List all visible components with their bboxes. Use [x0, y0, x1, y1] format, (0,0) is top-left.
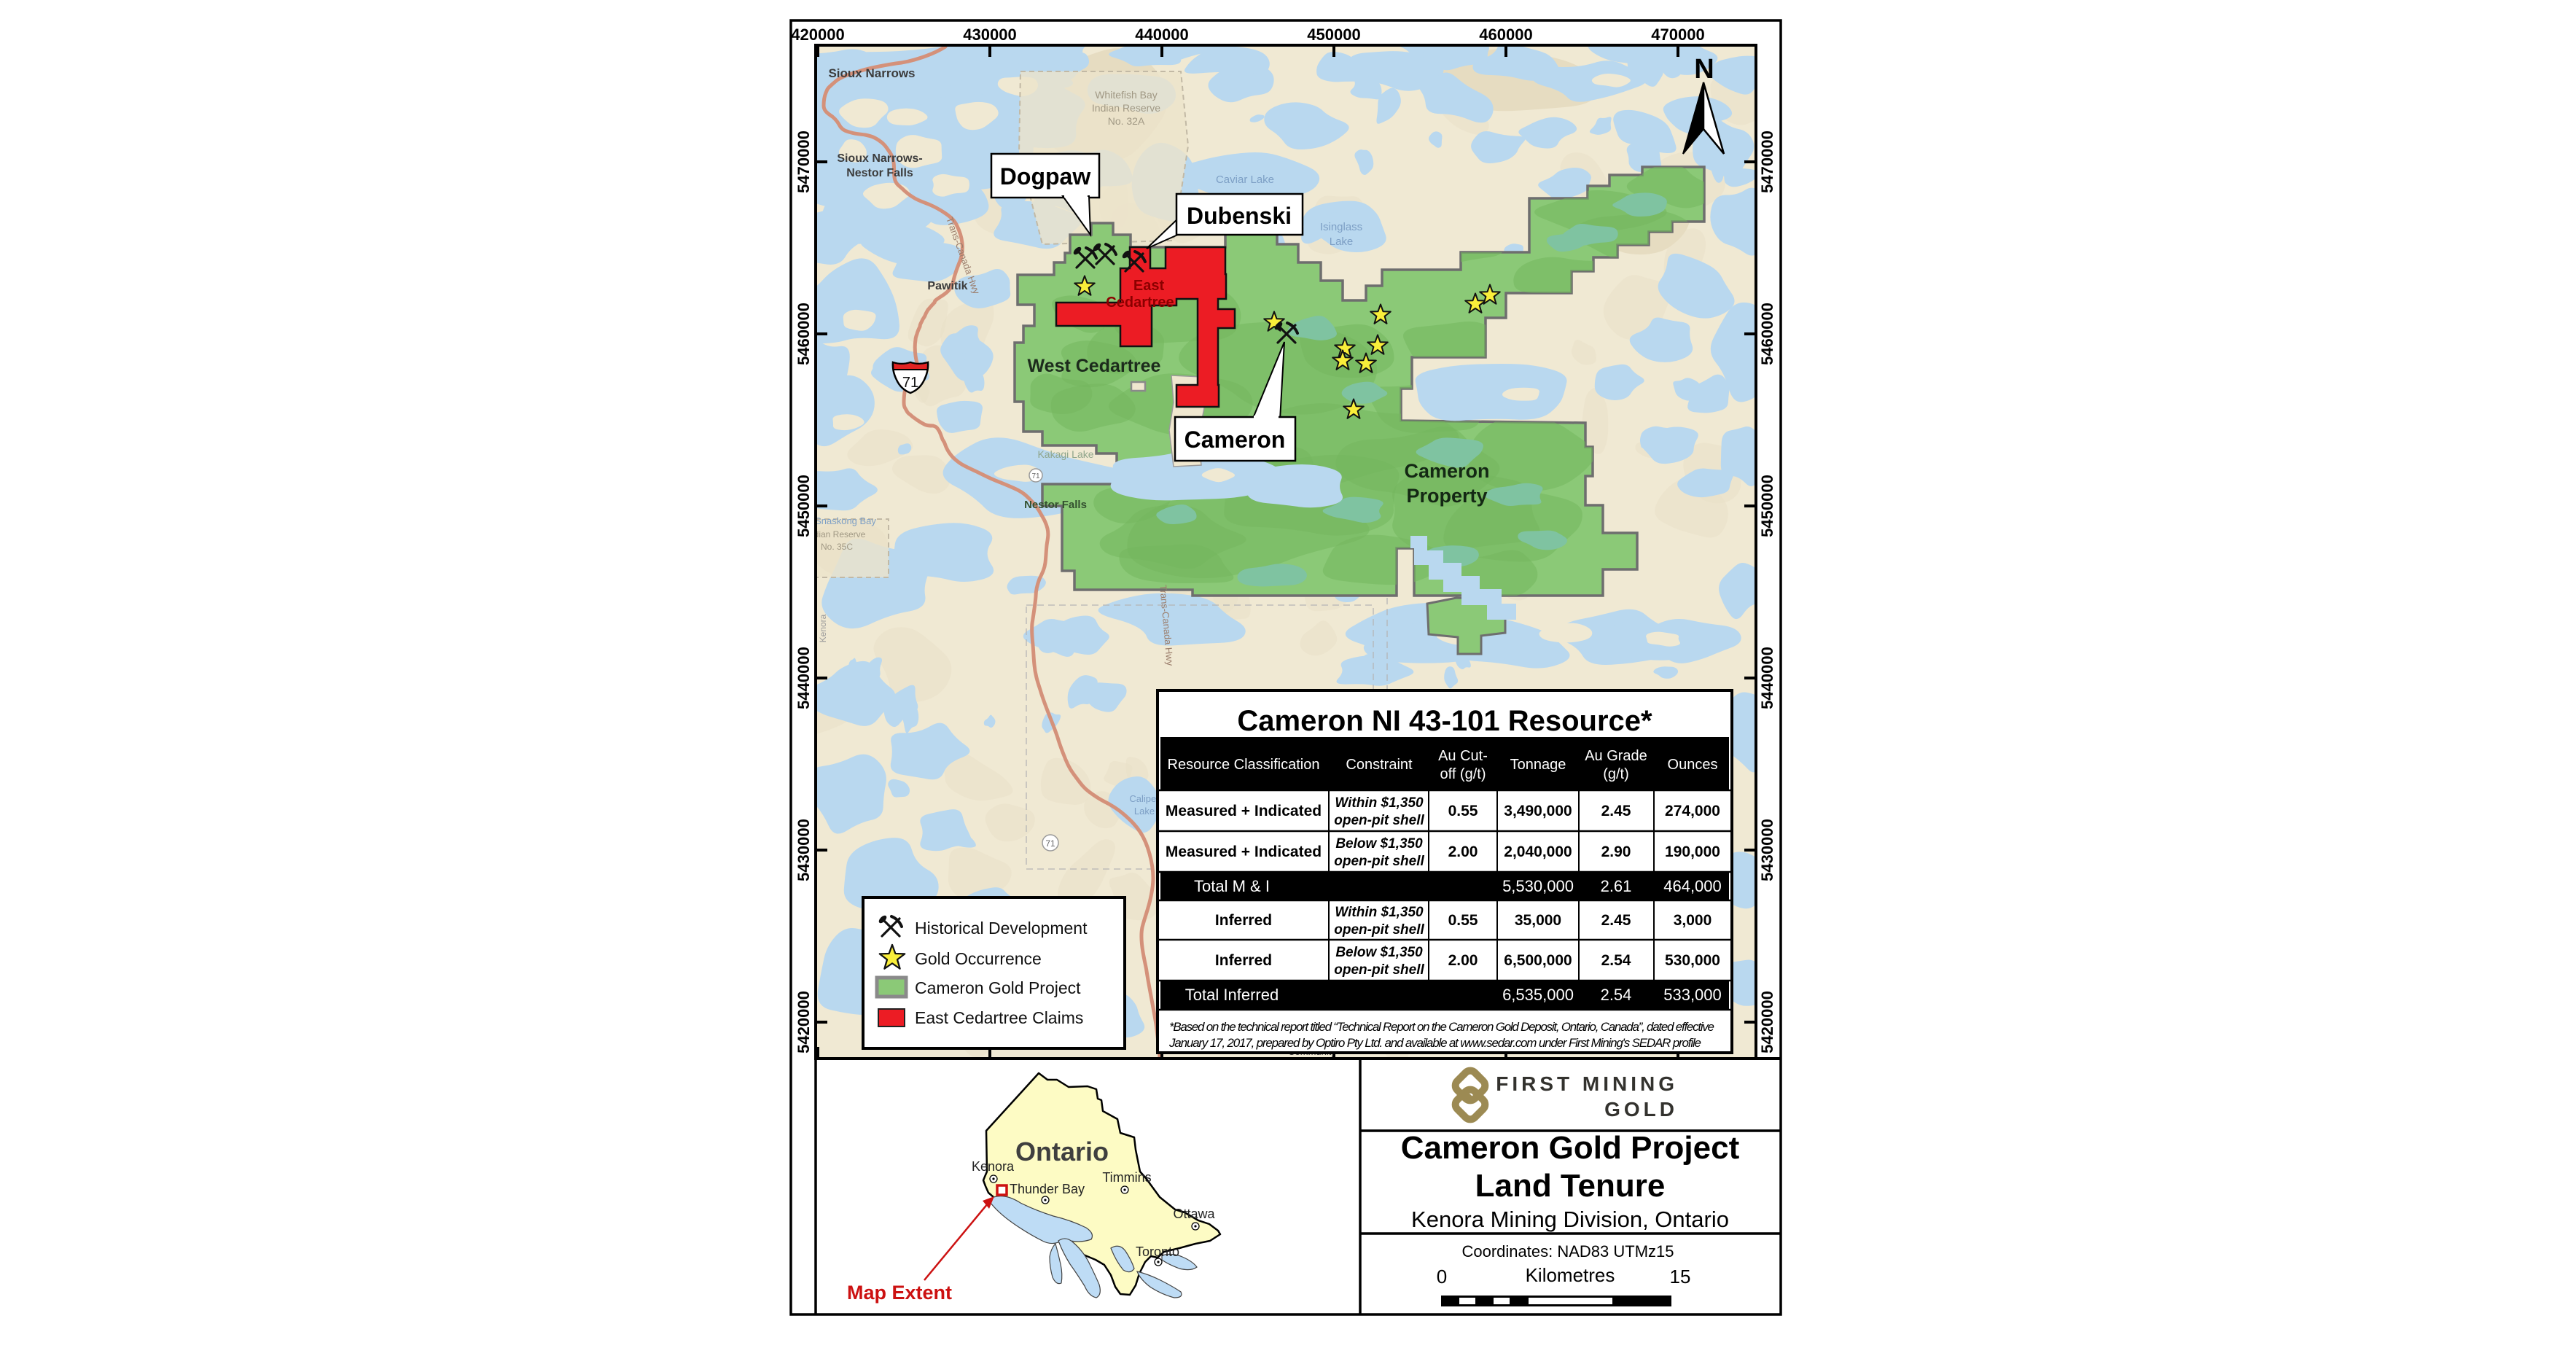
svg-text:3,000: 3,000 [1674, 912, 1712, 929]
svg-text:Inferred: Inferred [1215, 912, 1272, 929]
svg-text:Cedartree: Cedartree [1106, 295, 1174, 311]
svg-text:450000: 450000 [1307, 26, 1360, 44]
svg-text:5460000: 5460000 [795, 303, 813, 365]
svg-text:0: 0 [1437, 1266, 1447, 1287]
svg-text:Cameron Gold Project: Cameron Gold Project [1401, 1130, 1740, 1166]
svg-text:71: 71 [902, 375, 918, 391]
svg-text:Below $1,350: Below $1,350 [1335, 945, 1423, 960]
svg-text:No. 35C: No. 35C [821, 542, 853, 552]
svg-text:Cameron: Cameron [1184, 426, 1286, 453]
svg-text:71: 71 [1045, 838, 1055, 849]
svg-text:5450000: 5450000 [795, 475, 813, 537]
svg-text:2.61: 2.61 [1601, 877, 1632, 895]
svg-text:35,000: 35,000 [1515, 912, 1561, 929]
svg-text:Ounces: Ounces [1668, 757, 1718, 773]
svg-text:2.54: 2.54 [1601, 986, 1632, 1004]
svg-text:Kilometres: Kilometres [1526, 1264, 1615, 1286]
svg-text:Isinglass: Isinglass [1320, 221, 1362, 233]
svg-text:January 17, 2017, prepared by: January 17, 2017, prepared by Optiro Pty… [1168, 1036, 1701, 1050]
svg-text:Sioux Narrows: Sioux Narrows [828, 66, 915, 80]
svg-text:5420000: 5420000 [1758, 991, 1776, 1053]
svg-text:5470000: 5470000 [1758, 130, 1776, 193]
svg-text:5440000: 5440000 [1758, 647, 1776, 709]
svg-text:5,530,000: 5,530,000 [1502, 877, 1574, 895]
svg-text:open-pit shell: open-pit shell [1334, 962, 1424, 978]
svg-text:(g/t): (g/t) [1603, 766, 1629, 782]
svg-text:off (g/t): off (g/t) [1440, 766, 1486, 782]
svg-text:Indian Reserve: Indian Reserve [1092, 102, 1160, 114]
svg-text:dian Reserve: dian Reserve [814, 529, 866, 539]
svg-text:open-pit shell: open-pit shell [1334, 813, 1424, 828]
svg-text:Lake: Lake [1134, 806, 1155, 817]
svg-text:460000: 460000 [1479, 26, 1532, 44]
svg-text:open-pit shell: open-pit shell [1334, 922, 1424, 938]
svg-text:Pawitik: Pawitik [927, 280, 967, 292]
svg-text:Below $1,350: Below $1,350 [1335, 836, 1423, 852]
svg-text:0.55: 0.55 [1448, 803, 1478, 819]
svg-text:No. 32A: No. 32A [1108, 115, 1145, 127]
svg-text:274,000: 274,000 [1665, 803, 1720, 819]
svg-text:Historical Development: Historical Development [915, 919, 1088, 938]
svg-text:5430000: 5430000 [1758, 819, 1776, 881]
svg-text:Within $1,350: Within $1,350 [1335, 795, 1424, 811]
svg-text:Cameron: Cameron [1404, 460, 1489, 482]
svg-text:2.45: 2.45 [1601, 803, 1631, 819]
svg-text:5430000: 5430000 [795, 819, 813, 881]
svg-text:Caliper: Caliper [1129, 793, 1160, 804]
svg-text:Thunder Bay: Thunder Bay [1010, 1182, 1085, 1196]
svg-text:N: N [1694, 54, 1714, 85]
svg-text:Sioux Narrows-: Sioux Narrows- [837, 152, 922, 165]
svg-text:2.00: 2.00 [1448, 952, 1478, 969]
svg-text:Total M & I: Total M & I [1194, 877, 1270, 895]
svg-text:6,535,000: 6,535,000 [1502, 986, 1574, 1004]
svg-text:2.45: 2.45 [1601, 912, 1631, 929]
svg-text:533,000: 533,000 [1663, 986, 1722, 1004]
svg-text:Resource Classification: Resource Classification [1168, 757, 1320, 773]
svg-text:Dogpaw: Dogpaw [1000, 163, 1091, 190]
svg-text:3,490,000: 3,490,000 [1504, 803, 1572, 819]
svg-text:6,500,000: 6,500,000 [1504, 952, 1572, 969]
svg-text:Caviar Lake: Caviar Lake [1216, 174, 1274, 186]
svg-text:West Cedartree: West Cedartree [1028, 356, 1161, 376]
svg-text:440000: 440000 [1135, 26, 1188, 44]
svg-text:464,000: 464,000 [1663, 877, 1722, 895]
svg-text:Toronto: Toronto [1136, 1244, 1179, 1259]
svg-text:470000: 470000 [1651, 26, 1704, 44]
svg-text:GOLD: GOLD [1604, 1098, 1678, 1121]
svg-text:Measured + Indicated: Measured + Indicated [1166, 844, 1322, 860]
svg-text:5470000: 5470000 [795, 130, 813, 193]
svg-text:5420000: 5420000 [795, 991, 813, 1053]
svg-text:5440000: 5440000 [795, 647, 813, 709]
svg-text:Kenora Mining Division, Ontari: Kenora Mining Division, Ontario [1411, 1207, 1729, 1232]
svg-text:190,000: 190,000 [1665, 844, 1720, 860]
svg-text:430000: 430000 [963, 26, 1016, 44]
svg-text:Coordinates: NAD83 UTMz15: Coordinates: NAD83 UTMz15 [1461, 1242, 1674, 1261]
svg-text:Ottawa: Ottawa [1173, 1207, 1215, 1221]
svg-text:East Cedartree Claims: East Cedartree Claims [915, 1008, 1083, 1027]
svg-text:Total Inferred: Total Inferred [1185, 986, 1279, 1004]
svg-text:Nestor Falls: Nestor Falls [846, 167, 913, 179]
svg-text:Kakagi Lake: Kakagi Lake [1037, 448, 1093, 460]
svg-text:Kenora: Kenora [818, 614, 828, 642]
svg-text:Nestor Falls: Nestor Falls [1024, 499, 1087, 511]
svg-text:Au Grade: Au Grade [1585, 748, 1647, 764]
svg-text:Ontario: Ontario [1015, 1137, 1109, 1166]
svg-text:Property: Property [1406, 485, 1487, 507]
svg-text:2.90: 2.90 [1601, 844, 1631, 860]
svg-text:Inferred: Inferred [1215, 952, 1272, 969]
svg-text:Whitefish Bay: Whitefish Bay [1095, 89, 1158, 101]
svg-text:Map Extent: Map Extent [847, 1282, 952, 1304]
svg-text:Measured + Indicated: Measured + Indicated [1166, 803, 1322, 819]
svg-text:Land Tenure: Land Tenure [1475, 1168, 1666, 1204]
svg-text:530,000: 530,000 [1665, 952, 1720, 969]
svg-text:2.00: 2.00 [1448, 844, 1478, 860]
svg-text:Snaskong Bay: Snaskong Bay [815, 515, 876, 526]
svg-text:2.54: 2.54 [1601, 952, 1631, 969]
svg-text:5460000: 5460000 [1758, 303, 1776, 365]
svg-text:420000: 420000 [791, 26, 844, 44]
svg-text:5450000: 5450000 [1758, 475, 1776, 537]
svg-text:open-pit shell: open-pit shell [1334, 854, 1424, 869]
svg-text:0.55: 0.55 [1448, 912, 1478, 929]
svg-text:Tonnage: Tonnage [1510, 757, 1566, 773]
svg-text:Dubenski: Dubenski [1187, 203, 1292, 229]
svg-text:Within $1,350: Within $1,350 [1335, 905, 1424, 920]
svg-text:Au Cut-: Au Cut- [1438, 748, 1488, 764]
svg-text:Cameron Gold Project: Cameron Gold Project [915, 978, 1081, 997]
svg-text:Lake: Lake [1330, 235, 1354, 248]
svg-text:FIRST MINING: FIRST MINING [1496, 1072, 1678, 1095]
svg-text:Constraint: Constraint [1346, 757, 1413, 773]
svg-text:71: 71 [1031, 472, 1040, 480]
svg-text:Timmins: Timmins [1102, 1170, 1151, 1185]
svg-text:Kenora: Kenora [972, 1159, 1015, 1174]
svg-text:*Based on the technical report: *Based on the technical report titled “T… [1169, 1020, 1714, 1034]
svg-text:15: 15 [1670, 1266, 1691, 1287]
svg-text:Gold Occurrence: Gold Occurrence [915, 949, 1042, 968]
svg-text:East: East [1133, 278, 1165, 294]
svg-text:2,040,000: 2,040,000 [1504, 844, 1572, 860]
svg-text:Cameron NI 43-101 Resource*: Cameron NI 43-101 Resource* [1237, 705, 1652, 737]
